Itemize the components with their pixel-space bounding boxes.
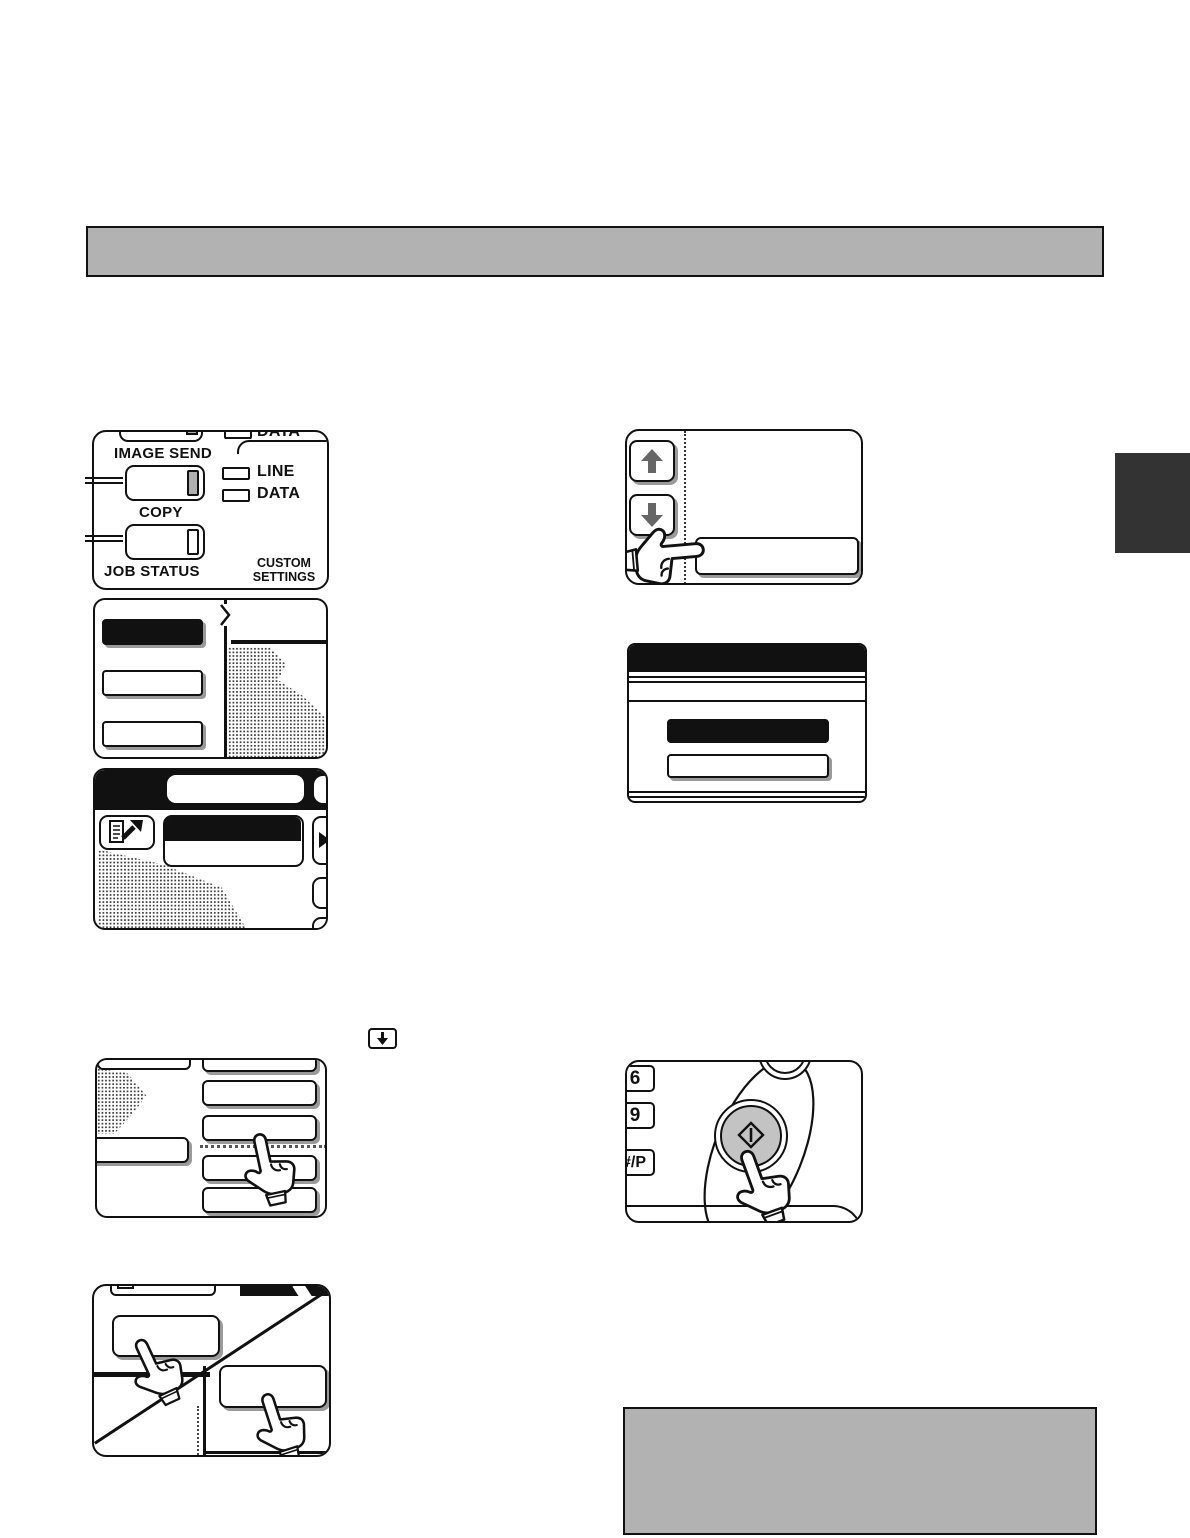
copy-button[interactable] xyxy=(125,524,205,560)
panel-seam-line xyxy=(85,477,123,484)
custom-settings-label: CUSTOM SETTINGS xyxy=(242,556,326,585)
list-button[interactable] xyxy=(202,1080,317,1106)
address-directory-button[interactable] xyxy=(99,815,155,850)
address-key-group[interactable] xyxy=(163,815,304,867)
keypad-start-panel: 6 9 #/P xyxy=(625,1060,863,1223)
up-arrow-icon xyxy=(640,448,664,474)
down-arrow-icon xyxy=(640,502,664,528)
print-indicator xyxy=(186,430,198,435)
side-button[interactable] xyxy=(312,877,328,909)
menu-selected-button[interactable] xyxy=(102,619,203,645)
pointing-hand-icon xyxy=(625,522,709,585)
scroll-up-button[interactable] xyxy=(629,440,675,482)
dithered-screen-content xyxy=(228,647,328,757)
copy-label: COPY xyxy=(139,504,183,521)
address-key-selected[interactable] xyxy=(165,817,301,841)
dialog-rule xyxy=(629,700,867,702)
hash-p-key[interactable]: #/P xyxy=(625,1149,655,1176)
button-indicator xyxy=(117,1284,134,1289)
dialog-selected-button[interactable] xyxy=(667,719,829,743)
document-send-icon xyxy=(107,818,147,846)
manual-page: DATA IMAGE SEND LINE DATA COPY JOB STATU… xyxy=(0,0,1190,1538)
side-button[interactable] xyxy=(312,917,328,930)
numeric-key-6[interactable]: 6 xyxy=(625,1065,655,1092)
dialog-rule xyxy=(629,796,867,798)
image-send-label: IMAGE SEND xyxy=(114,445,212,462)
top-data-led xyxy=(224,430,252,439)
note-box xyxy=(623,1407,1097,1535)
job-status-label: JOB STATUS xyxy=(104,563,200,580)
screen-rule xyxy=(231,640,328,644)
dialog-button[interactable] xyxy=(667,754,829,778)
list-left-button[interactable] xyxy=(95,1137,189,1163)
chevron-right-icon xyxy=(218,604,233,626)
line-led xyxy=(222,467,250,480)
next-page-button[interactable] xyxy=(312,816,328,865)
line-led-label: LINE xyxy=(257,463,295,481)
dialog-rule xyxy=(629,676,867,678)
right-triangle-icon xyxy=(319,832,328,848)
section-header-bar xyxy=(86,226,1104,277)
menu-button[interactable] xyxy=(102,721,203,747)
down-arrow-key-icon xyxy=(368,1028,397,1049)
touchscreen-split-panel xyxy=(92,1284,331,1457)
dialog-rule xyxy=(629,791,867,793)
copy-indicator xyxy=(187,529,199,555)
image-send-button[interactable] xyxy=(125,465,205,501)
header-button[interactable] xyxy=(167,775,304,803)
numeric-key-9[interactable]: 9 xyxy=(625,1102,655,1129)
panel-seam-line xyxy=(85,535,123,542)
touchscreen-menu-panel xyxy=(93,598,328,759)
touchscreen-address-panel xyxy=(93,768,328,930)
list-button[interactable] xyxy=(202,1058,317,1072)
dialog-rule xyxy=(629,681,867,683)
wide-button-pressed[interactable] xyxy=(695,537,859,575)
data-led-label: DATA xyxy=(257,485,300,503)
touchscreen-dialog-panel xyxy=(627,643,867,803)
dialog-title-bar xyxy=(629,645,867,672)
chapter-tab xyxy=(1115,453,1190,553)
header-corner-button[interactable] xyxy=(314,776,328,803)
divider-break xyxy=(218,604,233,626)
list-partial-button[interactable] xyxy=(97,1058,191,1070)
data-led xyxy=(222,489,250,502)
dithered-screen-content xyxy=(97,1068,192,1134)
menu-button[interactable] xyxy=(102,670,203,696)
mode-select-panel-illustration: DATA IMAGE SEND LINE DATA COPY JOB STATU… xyxy=(92,430,329,590)
frame-line-dotted xyxy=(197,1406,199,1457)
led-group-frame xyxy=(237,440,329,454)
touchscreen-list-panel xyxy=(95,1058,327,1218)
frame-line xyxy=(203,1366,206,1457)
image-send-indicator xyxy=(187,470,199,496)
touchscreen-scroll-panel xyxy=(625,429,863,585)
